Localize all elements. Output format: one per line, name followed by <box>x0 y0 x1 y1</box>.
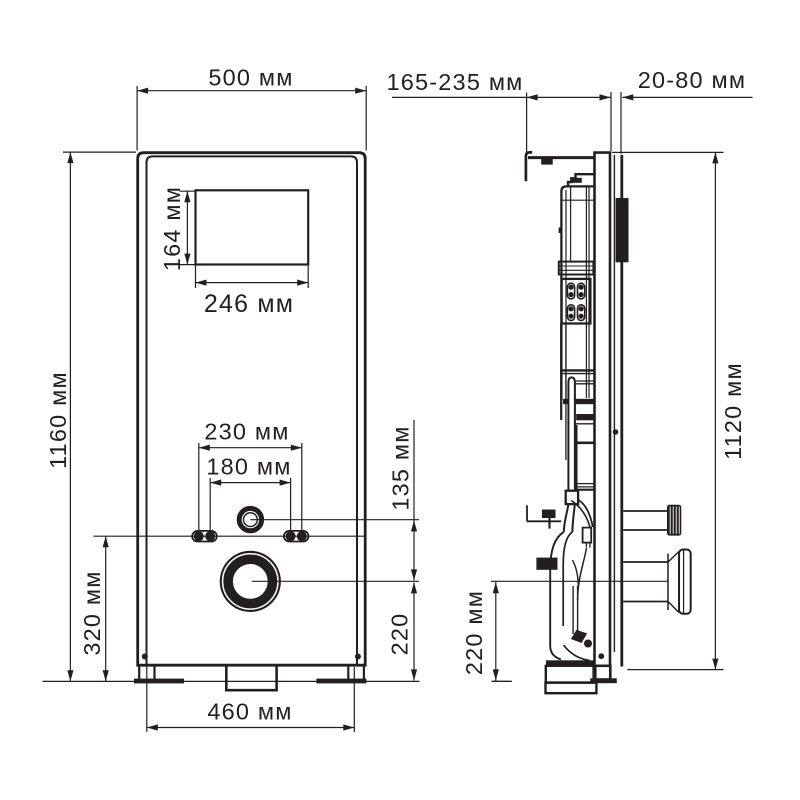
svg-text:220: 220 <box>387 613 413 656</box>
svg-text:460 мм: 460 мм <box>207 699 292 725</box>
svg-text:320 мм: 320 мм <box>79 570 105 655</box>
svg-text:135 мм: 135 мм <box>388 425 414 510</box>
svg-text:180 мм: 180 мм <box>206 454 291 480</box>
svg-text:246 мм: 246 мм <box>204 290 294 318</box>
svg-text:164 мм: 164 мм <box>159 186 185 271</box>
svg-text:165-235 мм: 165-235 мм <box>386 69 523 95</box>
svg-text:230 мм: 230 мм <box>204 419 289 445</box>
svg-text:20-80 мм: 20-80 мм <box>638 67 747 93</box>
svg-text:1160 мм: 1160 мм <box>45 371 71 469</box>
svg-text:1120 мм: 1120 мм <box>720 362 746 460</box>
svg-text:220 мм: 220 мм <box>461 590 487 675</box>
svg-text:500 мм: 500 мм <box>208 65 293 91</box>
